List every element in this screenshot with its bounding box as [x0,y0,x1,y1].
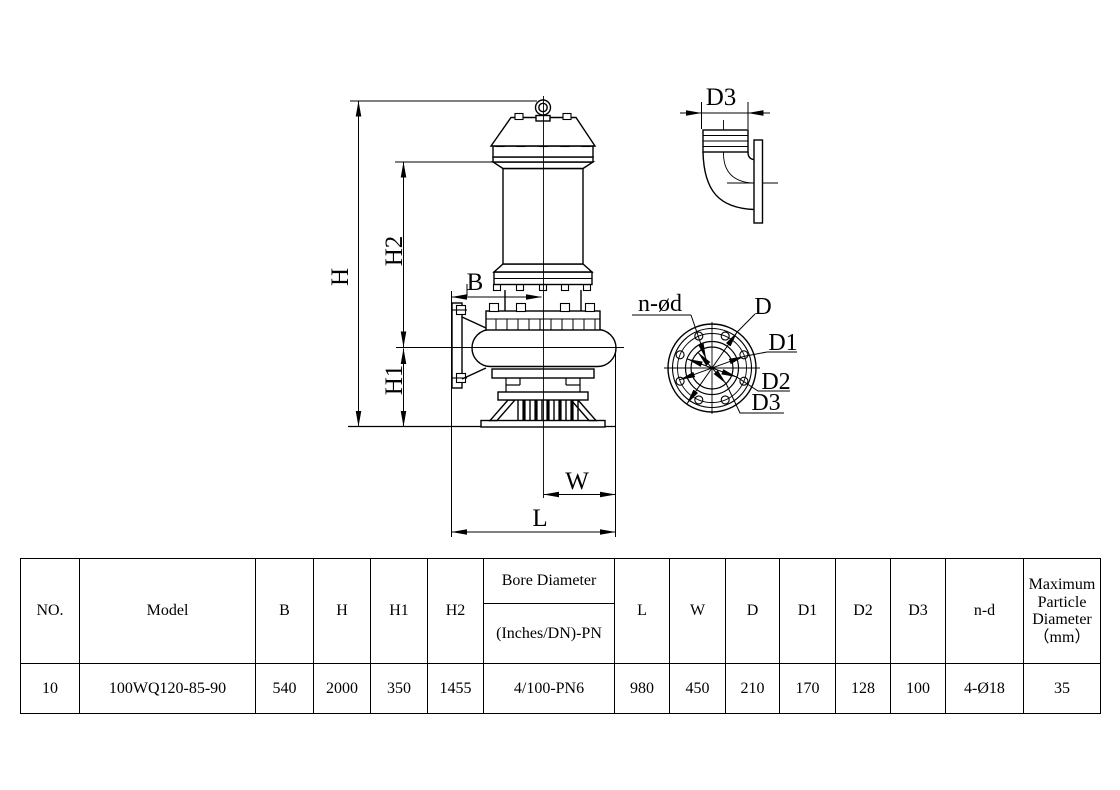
elbow-inner-wall [748,152,754,160]
cell-d2: 128 [836,664,891,714]
volute-casing [472,330,616,367]
cell-h: 2000 [314,664,371,714]
cell-b: 540 [256,664,314,714]
col-header-h1: H1 [371,559,428,664]
pump-spec-sheet: H H2 H1 B W L [0,0,1120,790]
cap-bolt-right [563,114,571,120]
col-header-d: D [726,559,780,664]
col-header-h2: H2 [428,559,484,664]
technical-drawing: H H2 H1 B W L [0,0,1120,556]
dimension-label-h2: H2 [381,236,408,267]
dimension-label-h1: H1 [381,365,408,396]
cap-bolt-left [515,114,523,120]
stand-plate [498,392,588,400]
col-header-nd: n-d [946,559,1024,664]
col-header-no: NO. [21,559,80,664]
dimension-label-w: W [565,468,589,495]
col-header-max-particle: Maximum Particle Diameter （mm） [1024,559,1101,664]
spec-table: NO. Model B H H1 H2 Bore Diameter (Inche… [20,558,1101,714]
spec-table-container: NO. Model B H H1 H2 Bore Diameter (Inche… [20,558,1101,714]
dimension-label-d: D [754,294,771,320]
volute-bottom-band [492,369,594,378]
cell-d: 210 [726,664,780,714]
col-header-h: H [314,559,371,664]
dimension-label-n-od: n-ød [638,291,682,317]
lifting-eye-base [536,116,550,122]
col-header-model: Model [80,559,256,664]
cell-d1: 170 [780,664,836,714]
cell-h1: 350 [371,664,428,714]
col-header-bore-title: Bore Diameter [484,559,614,603]
table-row: 10 100WQ120-85-90 540 2000 350 1455 4/10… [21,664,1101,714]
motor-top-taper [493,162,593,169]
cell-no: 10 [21,664,80,714]
cell-max: 35 [1024,664,1101,714]
suction-strainer [518,399,578,420]
seal-housing [486,311,600,330]
cell-bore: 4/100-PN6 [484,664,615,714]
base-plate [481,421,605,428]
col-header-l: L [615,559,670,664]
motor-top-flange [493,146,593,157]
nozzle-top [462,317,486,328]
elbow-outer-wall [703,152,754,210]
cell-l: 980 [615,664,670,714]
motor-cap [491,118,595,147]
dimension-label-b: B [467,269,484,296]
cell-w: 450 [670,664,726,714]
dimension-label-d3-flange: D3 [751,390,780,416]
dimension-label-d1: D1 [768,330,797,356]
motor-flare [494,264,592,272]
motor-body [503,169,583,265]
col-header-bore: Bore Diameter (Inches/DN)-PN [484,559,615,664]
col-header-d1: D1 [780,559,836,664]
dimension-label-d3-elbow: D3 [706,84,737,111]
col-header-d2: D2 [836,559,891,664]
elbow-flange [754,140,763,223]
dimension-label-l: L [532,505,547,532]
col-header-b: B [256,559,314,664]
cell-model: 100WQ120-85-90 [80,664,256,714]
right-leg [571,400,596,421]
motor-flange-bolts [494,285,591,291]
cell-d3: 100 [891,664,946,714]
left-leg [490,400,515,421]
elbow-detail-view [680,102,778,223]
col-header-bore-units: (Inches/DN)-PN [484,603,614,663]
cell-nd: 4-Ø18 [946,664,1024,714]
col-header-d3: D3 [891,559,946,664]
stand-brackets [506,378,580,392]
dimension-label-h: H [327,268,354,286]
cell-h2: 1455 [428,664,484,714]
col-header-w: W [670,559,726,664]
